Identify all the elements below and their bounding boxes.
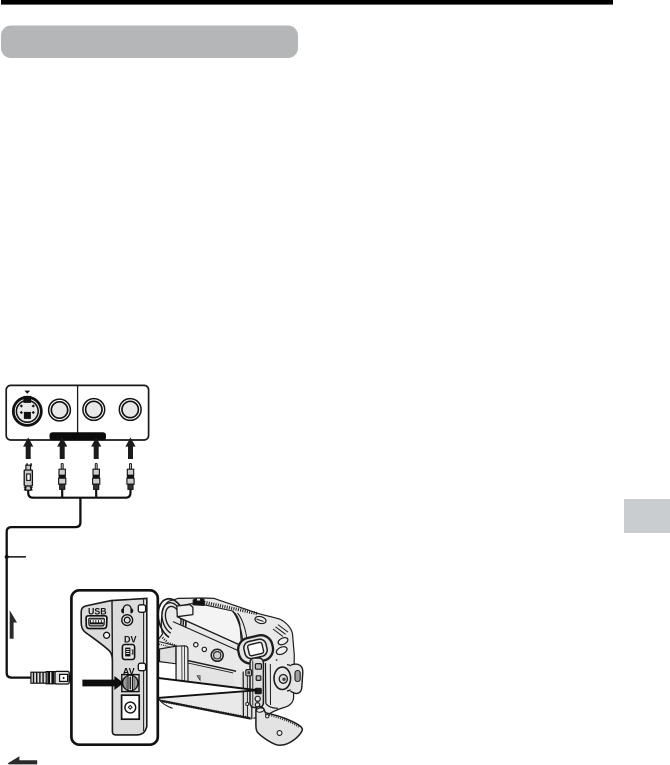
svg-text:DV: DV	[124, 634, 137, 644]
